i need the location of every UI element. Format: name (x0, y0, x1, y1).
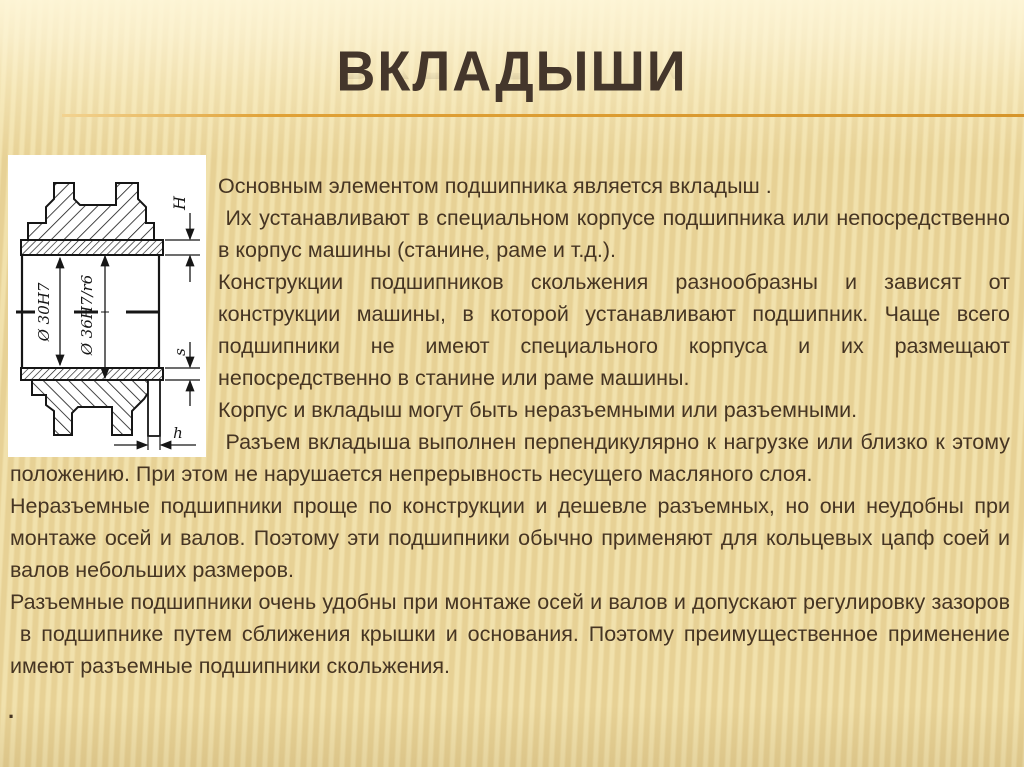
slide-title-reflection: ВКЛАДЫШИ (0, 66, 1024, 88)
title-underline-rule (62, 114, 1024, 117)
trailing-period: . (8, 700, 14, 722)
figure-float-spacer (10, 170, 218, 456)
body-text: Основным элементом подшипника является в… (10, 170, 1010, 682)
slide: ВКЛАДЫШИ ВКЛАДЫШИ (0, 0, 1024, 767)
paragraph-7: Разъемные подшипники очень удобны при мо… (10, 586, 1010, 682)
title-block: ВКЛАДЫШИ ВКЛАДЫШИ (0, 44, 1024, 110)
paragraph-6: Неразъемные подшипники проще по конструк… (10, 490, 1010, 586)
